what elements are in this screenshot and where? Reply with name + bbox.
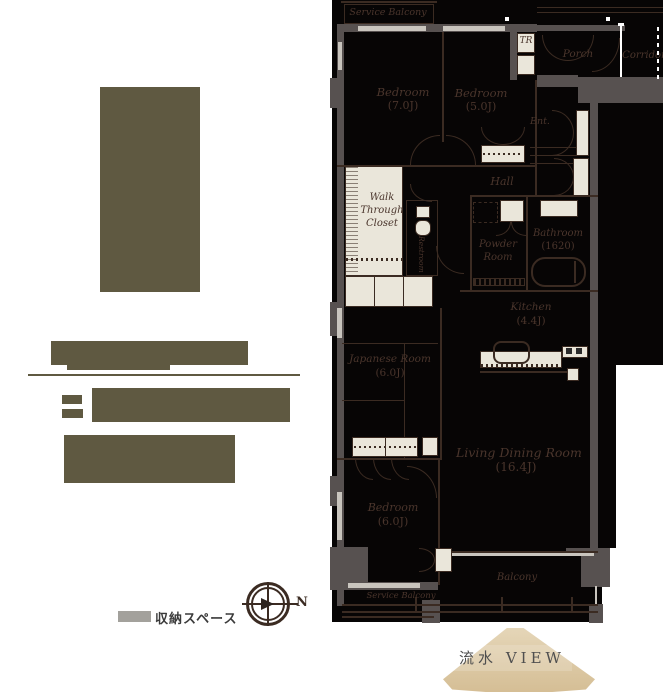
wtc-label-2: Through <box>354 206 410 217</box>
japanese-room-size: (6.0J) <box>344 368 436 379</box>
porch-top-wall <box>537 25 625 31</box>
balcony-railing-2 <box>342 611 598 613</box>
powder-label-1: Powder <box>468 240 528 251</box>
bedroom1-size: (7.0J) <box>363 100 443 112</box>
bedroom2-size: (5.0J) <box>441 101 521 113</box>
living-size: (16.4J) <box>456 461 576 474</box>
tatami-line-h2 <box>342 400 404 401</box>
service-balcony-top-line <box>341 1 437 3</box>
bedroom3-label: Bedroom <box>353 502 433 514</box>
bedroom1-window <box>358 26 426 31</box>
japanese-closet-div-2 <box>403 277 404 306</box>
wall-dot-1 <box>505 17 509 21</box>
bedroom1-label: Bedroom <box>363 86 443 98</box>
bathroom-size: (1620) <box>525 242 591 253</box>
japanese-right-wall <box>440 308 442 458</box>
bedroom2-label: Bedroom <box>441 87 521 99</box>
right-wall <box>590 80 598 548</box>
divider-line <box>28 374 300 376</box>
balcony-label: Balcony <box>487 573 547 584</box>
service-balcony-bottom-label: Service Balcony <box>361 592 441 601</box>
redacted-small-block-2 <box>62 409 83 418</box>
kitchen-label: Kitchen <box>501 302 561 313</box>
toilet-tank <box>416 206 430 218</box>
living-label: Living Dining Room <box>456 446 576 459</box>
bedroom3-window-bottom <box>348 583 420 588</box>
left-pillar-1 <box>330 78 344 108</box>
redacted-title-bar <box>51 341 248 365</box>
wtc-hatch-row <box>346 258 402 261</box>
corridor-railing-cap <box>618 23 624 26</box>
right-bottom-pillar <box>581 555 610 587</box>
service-balcony-bottom-line <box>342 616 434 618</box>
floorplan-page: Service Balcony <box>0 0 663 692</box>
bedroom3-closet-div <box>385 438 386 456</box>
redacted-title-underbar <box>67 365 170 370</box>
kitchen-counter-hatch <box>481 364 561 367</box>
left-window-1 <box>338 42 342 70</box>
compass: N <box>246 582 308 630</box>
tatami-line-h1 <box>342 343 438 344</box>
balcony-railing-1 <box>342 604 598 606</box>
bedroom2-window <box>443 26 505 31</box>
storage-legend-swatch <box>118 611 151 622</box>
wtc-label-3: Closet <box>354 219 410 230</box>
bedroom3-size: (6.0J) <box>353 516 433 528</box>
service-balcony-top-label: Service Balcony <box>343 8 433 18</box>
bedroom3-closet-end <box>422 437 438 456</box>
ent-left-wall <box>535 80 537 196</box>
balcony-storage-box <box>435 548 452 572</box>
kitchen-sink <box>493 341 530 364</box>
compass-north-label: N <box>296 595 308 610</box>
trunk-room-label: TR <box>516 37 536 46</box>
porch-step-wall-2 <box>578 77 663 103</box>
japanese-room-window <box>337 308 342 338</box>
porch-edge-line-1 <box>537 7 663 8</box>
railing-tick-3 <box>571 597 573 612</box>
powder-hatch-strip <box>473 278 525 286</box>
railing-tick-2 <box>501 597 503 612</box>
right-bottom-foot <box>589 604 603 623</box>
tr-left-wall <box>510 25 517 80</box>
wall-dot-2 <box>606 17 610 21</box>
plan-background-right-strip <box>598 365 616 548</box>
powder-vanity <box>500 200 524 222</box>
bedroom2-closet-hatch <box>483 153 523 155</box>
restroom-label: Restroom <box>417 236 425 273</box>
powder-top-wall <box>470 195 598 197</box>
wtc-label-1: Walk <box>354 193 410 204</box>
compass-needle-icon <box>261 598 274 610</box>
kitchen-size: (4.4J) <box>501 316 561 327</box>
toilet-bowl <box>415 220 431 236</box>
bath-vanity <box>540 200 578 217</box>
corridor-edge-dashes <box>657 27 659 79</box>
type-letter-block <box>100 87 200 292</box>
japanese-closet-div-1 <box>374 277 375 306</box>
bedroom3-window-left <box>337 492 342 540</box>
corridor-railing <box>620 25 622 77</box>
kitchen-cabinet-box <box>567 368 579 381</box>
bathtub <box>531 257 586 287</box>
bathroom-label: Bathroom <box>525 229 591 240</box>
redacted-small-block-1 <box>62 395 82 404</box>
bathtub-inner-line <box>574 261 576 283</box>
porch-step-wall-1 <box>537 75 578 87</box>
redacted-text-block <box>92 388 290 422</box>
redacted-area-block <box>64 435 235 483</box>
trunk-room-lower-box <box>517 55 535 75</box>
view-fan-label: 流水 VIEW <box>452 645 572 671</box>
porch-edge-line-2 <box>537 12 663 13</box>
stove-burner-1 <box>566 348 572 354</box>
bath-bottom-wall <box>460 290 598 292</box>
kitchen-counter-edge <box>480 371 572 373</box>
ent-label: Ent. <box>526 117 554 127</box>
washer-box <box>473 202 498 223</box>
powder-label-2: Room <box>468 253 528 264</box>
floorplan-drawing: Service Balcony <box>330 0 663 645</box>
storage-legend-label: 収納スペース <box>155 608 237 627</box>
ent-closet-upper <box>576 110 589 156</box>
stove-burner-2 <box>576 348 582 354</box>
pillar-gap-line <box>595 586 597 604</box>
japanese-closet-row <box>345 276 433 307</box>
ent-closet-lower <box>573 158 589 196</box>
japanese-room-label: Japanese Room <box>344 354 436 365</box>
living-balcony-window <box>442 553 594 556</box>
hall-label: Hall <box>482 176 522 188</box>
